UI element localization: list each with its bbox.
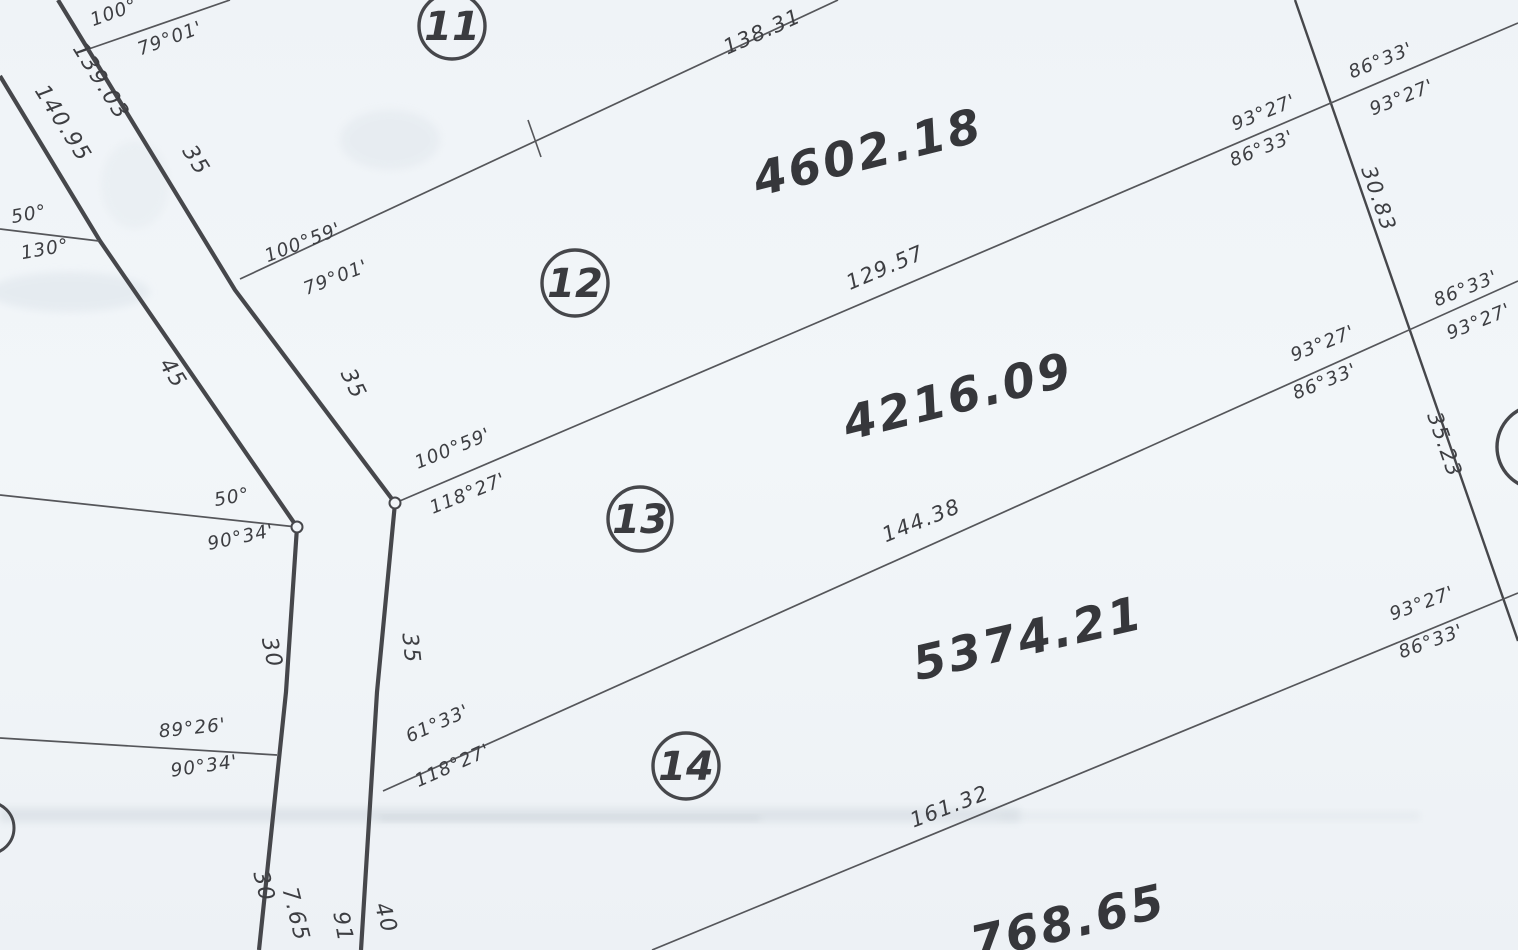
survey-plat-drawing: 11 12 13 14 4602.18 4216.09 5374.21 768.… (0, 0, 1518, 950)
fold-crease (1000, 812, 1420, 820)
scan-smudge (101, 141, 169, 229)
road-width-label: 35 (396, 632, 424, 665)
survey-node (390, 498, 401, 509)
parcel-number: 12 (547, 261, 603, 307)
distance-label: 91 (327, 909, 357, 944)
scan-smudge (340, 110, 440, 170)
parcel-number: 13 (612, 497, 668, 543)
plat-map-scan: 11 12 13 14 4602.18 4216.09 5374.21 768.… (0, 0, 1518, 950)
fold-crease (380, 816, 760, 821)
parcel-number: 14 (658, 744, 714, 790)
parcel-number: 11 (424, 4, 480, 50)
survey-node (292, 522, 303, 533)
